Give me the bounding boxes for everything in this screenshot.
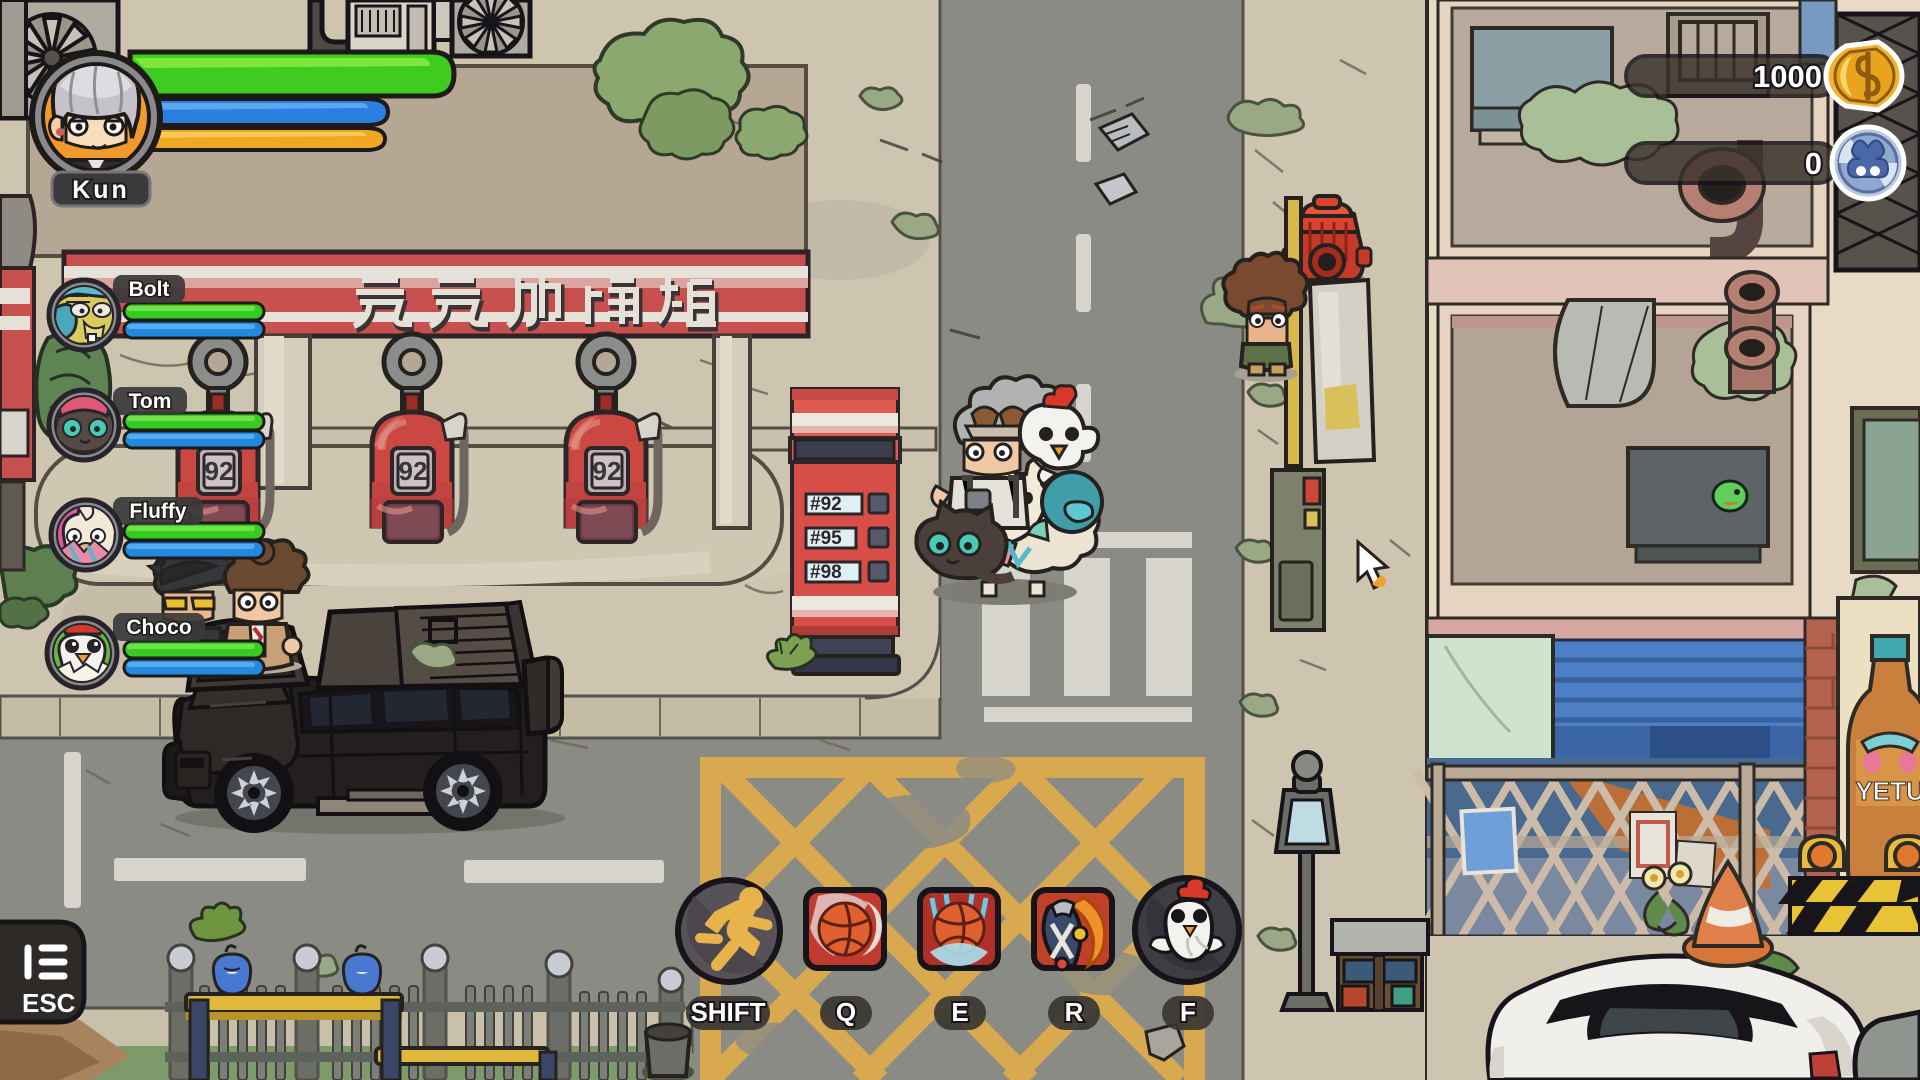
svg-text:Q: Q (836, 997, 856, 1027)
svg-text:0: 0 (1805, 146, 1822, 181)
svg-text:Fluffy: Fluffy (129, 500, 186, 523)
svg-text:#95: #95 (810, 528, 842, 549)
svg-text:E: E (951, 997, 968, 1027)
svg-text:#98: #98 (810, 562, 842, 583)
svg-text:1000: 1000 (1753, 59, 1822, 94)
svg-text:SHIFT: SHIFT (690, 997, 765, 1027)
svg-text:Kun: Kun (72, 176, 130, 204)
svg-text:F: F (1180, 997, 1196, 1027)
svg-text:Bolt: Bolt (129, 278, 170, 301)
svg-text:#92: #92 (810, 494, 842, 515)
svg-text:R: R (1065, 997, 1084, 1027)
svg-text:Choco: Choco (126, 616, 191, 639)
svg-text:ESC: ESC (22, 988, 76, 1018)
svg-text:YETU: YETU (1855, 776, 1920, 806)
svg-text:Tom: Tom (129, 390, 172, 413)
